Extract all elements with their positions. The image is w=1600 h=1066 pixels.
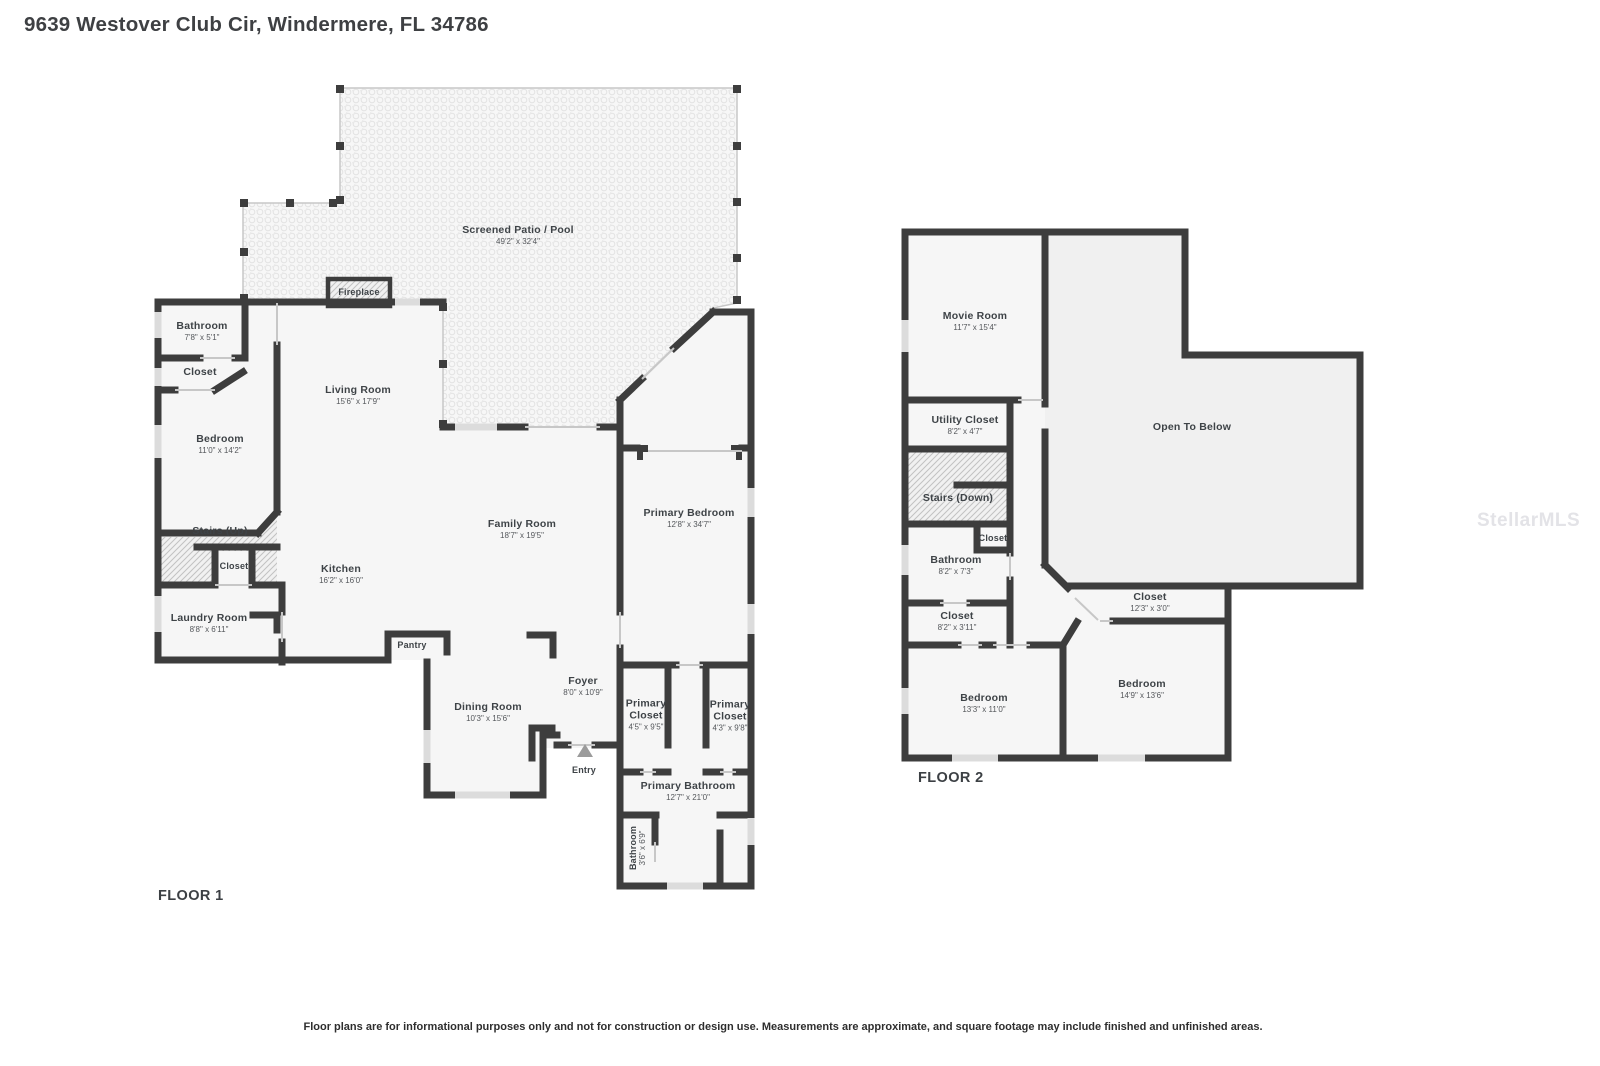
room-label-stairs-down: Stairs (Down) <box>923 493 993 505</box>
room-label-bathroom-2: Bathroom 3'6" x 6'9" <box>628 826 648 870</box>
room-label-primary-bedroom: Primary Bedroom 12'8" x 34'7" <box>643 508 734 530</box>
room-label-closet-f2-3: Closet 12'3" x 3'0" <box>1130 592 1169 614</box>
floor2-label: FLOOR 2 <box>918 770 984 786</box>
room-label-foyer: Foyer 8'0" x 10'9" <box>563 676 602 698</box>
room-label-kitchen: Kitchen 16'2" x 16'0" <box>319 564 363 586</box>
room-label-primary-bathroom: Primary Bathroom 12'7" x 21'0" <box>641 781 736 803</box>
disclaimer-text: Floor plans are for informational purpos… <box>0 1021 1566 1033</box>
room-label-utility-closet: Utility Closet 8'2" x 4'7" <box>932 415 999 437</box>
room-label-fireplace: Fireplace <box>338 287 379 297</box>
room-label-laundry-room: Laundry Room 8'8" x 6'11" <box>171 613 248 635</box>
room-label-dining-room: Dining Room 10'3" x 15'6" <box>454 702 522 724</box>
room-label-bathroom-1: Bathroom 7'8" x 5'1" <box>176 321 227 343</box>
floorplan-page: { "title": "9639 Westover Club Cir, Wind… <box>0 0 1600 1066</box>
room-label-screened-patio-pool: Screened Patio / Pool 49'2" x 32'4" <box>462 225 574 247</box>
room-label-living-room: Living Room 15'6" x 17'9" <box>325 385 391 407</box>
room-label-bathroom-f2: Bathroom 8'2" x 7'3" <box>930 555 981 577</box>
room-label-open-to-below: Open To Below <box>1153 422 1231 434</box>
floor1-label: FLOOR 1 <box>158 888 224 904</box>
room-label-primary-closet-2: Primary Closet 4'3" x 9'8" <box>705 699 755 732</box>
room-label-closet-1: Closet <box>183 367 216 379</box>
room-label-entry: Entry <box>572 765 596 775</box>
room-label-movie-room: Movie Room 11'7" x 15'4" <box>943 311 1007 333</box>
room-label-bedroom-f2-2: Bedroom 14'9" x 13'6" <box>1118 679 1166 701</box>
room-label-closet-f2-2: Closet 8'2" x 3'11" <box>938 611 977 633</box>
room-label-stairs-up: Stairs (Up) <box>192 526 247 538</box>
room-label-closet-f2-1: Closet <box>979 533 1008 543</box>
room-label-closet-2: Closet <box>220 561 249 571</box>
stellar-mls-watermark: StellarMLS <box>1477 510 1580 532</box>
room-label-primary-closet-1: Primary Closet 4'5" x 9'5" <box>621 698 671 731</box>
room-label-pantry: Pantry <box>397 640 426 650</box>
room-label-bedroom-f2-1: Bedroom 13'3" x 11'0" <box>960 693 1008 715</box>
room-label-family-room: Family Room 18'7" x 19'5" <box>488 519 556 541</box>
room-label-bedroom-1: Bedroom 11'0" x 14'2" <box>196 434 244 456</box>
open-to-below-area <box>1045 232 1360 586</box>
